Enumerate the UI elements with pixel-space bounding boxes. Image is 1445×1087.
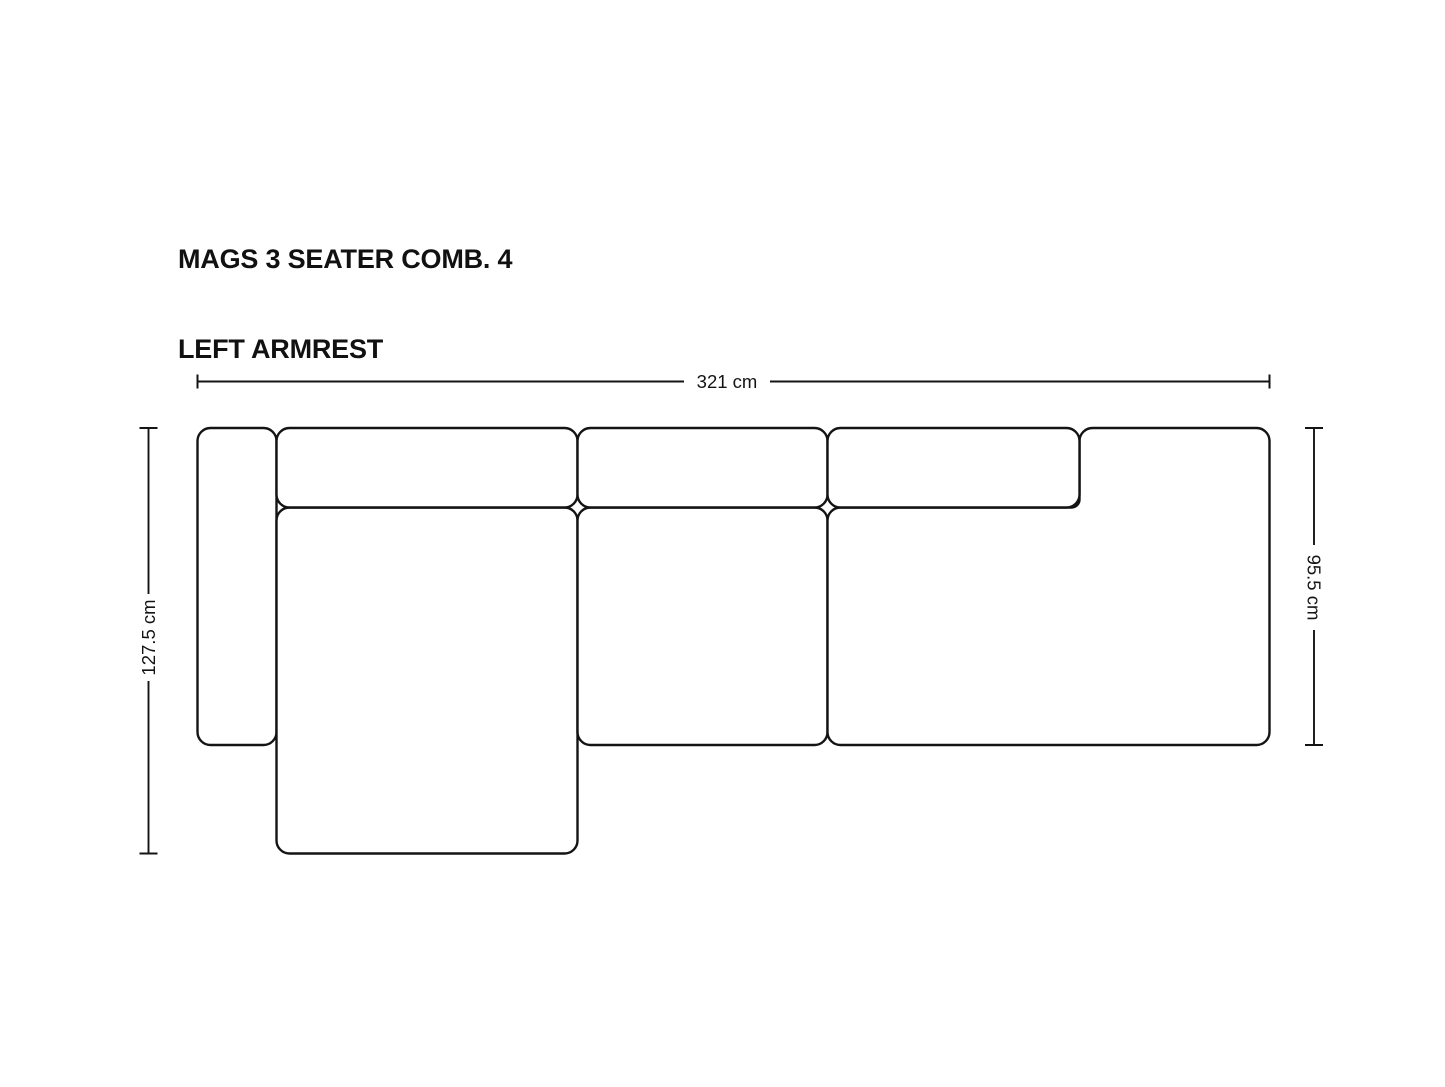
total-depth-dimension: 127.5 cm	[138, 428, 159, 854]
width-dimension: 321 cm	[198, 371, 1270, 392]
sofa-outline	[198, 428, 1270, 854]
back-cushion-3	[828, 428, 1080, 508]
width-dimension-label: 321 cm	[697, 371, 758, 392]
chaise-longue-module	[277, 508, 578, 854]
sofa-dimension-diagram: 321 cm 127.5 cm 95.5 cm	[0, 0, 1445, 1087]
back-cushion-1	[277, 428, 578, 508]
seat-depth-label: 95.5 cm	[1304, 555, 1325, 621]
middle-seat-module	[578, 508, 828, 746]
total-depth-label: 127.5 cm	[138, 599, 159, 675]
product-dimension-page: MAGS 3 SEATER COMB. 4 LEFT ARMREST 321 c…	[0, 0, 1445, 1087]
seat-depth-dimension: 95.5 cm	[1304, 428, 1325, 745]
back-cushion-2	[578, 428, 828, 508]
left-armrest-module	[198, 428, 277, 745]
